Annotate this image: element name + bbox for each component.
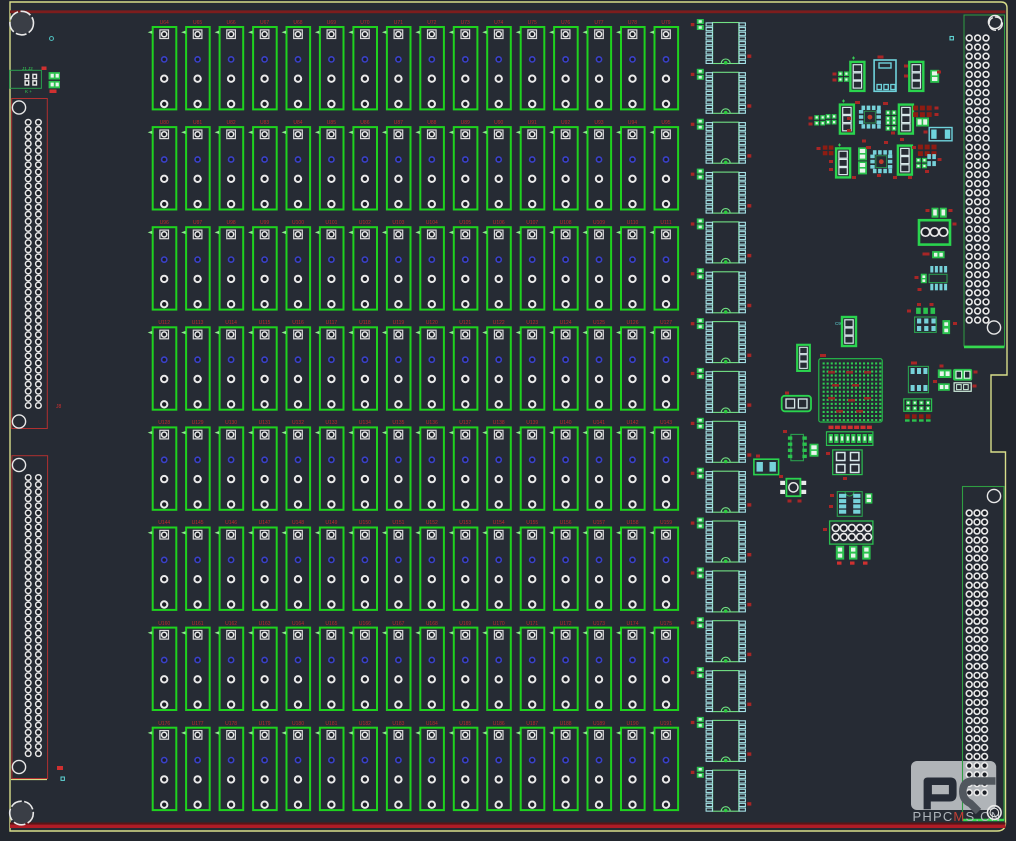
svg-text:U134: U134: [359, 420, 371, 426]
svg-text:U68: U68: [293, 20, 302, 26]
svg-text:U129: U129: [192, 420, 204, 426]
svg-text:U127: U127: [660, 320, 672, 326]
svg-text:U122: U122: [493, 320, 505, 326]
svg-text:U148: U148: [292, 520, 304, 526]
svg-text:U111: U111: [660, 220, 671, 226]
svg-text:U133: U133: [325, 420, 337, 426]
svg-text:U91: U91: [528, 120, 537, 126]
svg-text:U158: U158: [627, 520, 639, 526]
svg-text:U86: U86: [360, 120, 369, 126]
svg-text:U177: U177: [192, 721, 204, 727]
svg-text:U140: U140: [560, 420, 572, 426]
svg-text:J1 J2: J1 J2: [22, 66, 33, 71]
svg-text:U183: U183: [392, 721, 404, 727]
svg-text:U72: U72: [427, 20, 436, 26]
svg-text:U104: U104: [426, 220, 438, 226]
svg-text:U99: U99: [260, 220, 269, 226]
svg-text:U93: U93: [594, 120, 603, 126]
svg-text:U103: U103: [392, 220, 404, 226]
svg-text:U182: U182: [359, 721, 371, 727]
svg-text:U159: U159: [660, 520, 672, 526]
svg-text:U81: U81: [193, 120, 202, 126]
svg-text:U128: U128: [158, 420, 170, 426]
svg-text:U69: U69: [327, 20, 336, 26]
svg-text:U92: U92: [561, 120, 570, 126]
svg-text:U149: U149: [325, 520, 337, 526]
svg-text:U77: U77: [594, 20, 603, 26]
svg-text:U65: U65: [193, 20, 202, 26]
svg-text:U79: U79: [661, 20, 670, 26]
svg-text:U178: U178: [225, 721, 237, 727]
svg-text:U176: U176: [158, 721, 170, 727]
svg-text:U164: U164: [292, 621, 304, 627]
svg-text:U175: U175: [660, 621, 672, 627]
svg-text:U95: U95: [661, 120, 670, 126]
svg-text:U173: U173: [593, 621, 605, 627]
svg-text:U153: U153: [459, 520, 471, 526]
svg-text:U114: U114: [225, 320, 237, 326]
svg-text:U170: U170: [493, 621, 505, 627]
svg-text:U167: U167: [392, 621, 404, 627]
svg-text:U120: U120: [426, 320, 438, 326]
svg-text:U125: U125: [593, 320, 605, 326]
svg-text:U124: U124: [560, 320, 572, 326]
svg-text:U162: U162: [225, 621, 237, 627]
svg-text:U82: U82: [227, 120, 236, 126]
svg-text:C9: C9: [835, 321, 841, 326]
svg-text:U144: U144: [158, 520, 170, 526]
svg-text:K +: K +: [25, 89, 32, 94]
svg-text:U87: U87: [394, 120, 403, 126]
svg-text:U66: U66: [227, 20, 236, 26]
svg-text:U115: U115: [259, 320, 271, 326]
svg-text:U89: U89: [461, 120, 470, 126]
svg-text:U90: U90: [494, 120, 503, 126]
svg-text:U126: U126: [627, 320, 639, 326]
svg-text:U102: U102: [359, 220, 371, 226]
svg-text:U101: U101: [325, 220, 337, 226]
svg-text:U190: U190: [627, 721, 639, 727]
svg-text:U118: U118: [359, 320, 371, 326]
svg-text:U154: U154: [493, 520, 505, 526]
svg-text:U136: U136: [426, 420, 438, 426]
svg-text:U184: U184: [426, 721, 438, 727]
svg-text:U179: U179: [259, 721, 271, 727]
svg-text:U155: U155: [526, 520, 538, 526]
svg-text:U147: U147: [259, 520, 271, 526]
svg-text:U163: U163: [259, 621, 271, 627]
svg-text:U172: U172: [560, 621, 572, 627]
svg-text:U160: U160: [158, 621, 170, 627]
svg-text:U98: U98: [227, 220, 236, 226]
svg-text:U113: U113: [192, 320, 204, 326]
svg-text:U171: U171: [526, 621, 538, 627]
svg-text:U121: U121: [459, 320, 471, 326]
svg-text:U75: U75: [528, 20, 537, 26]
svg-text:U156: U156: [560, 520, 572, 526]
svg-text:U146: U146: [225, 520, 237, 526]
svg-text:U187: U187: [526, 721, 538, 727]
svg-text:U84: U84: [293, 120, 302, 126]
svg-text:U109: U109: [593, 220, 605, 226]
svg-text:U135: U135: [392, 420, 404, 426]
svg-text:J8: J8: [56, 404, 62, 410]
svg-text:U185: U185: [459, 721, 471, 727]
svg-text:U119: U119: [393, 320, 405, 326]
svg-text:U74: U74: [494, 20, 503, 26]
svg-text:U141: U141: [593, 420, 605, 426]
svg-text:U107: U107: [526, 220, 538, 226]
svg-text:U108: U108: [560, 220, 572, 226]
svg-text:U191: U191: [660, 721, 672, 727]
svg-text:U106: U106: [493, 220, 505, 226]
svg-text:U152: U152: [426, 520, 438, 526]
svg-text:U64: U64: [160, 20, 169, 26]
svg-text:U188: U188: [560, 721, 572, 727]
svg-text:U150: U150: [359, 520, 371, 526]
svg-text:U76: U76: [561, 20, 570, 26]
svg-text:U97: U97: [193, 220, 202, 226]
svg-text:U145: U145: [192, 520, 204, 526]
svg-text:U112: U112: [158, 320, 170, 326]
svg-text:U117: U117: [326, 320, 338, 326]
svg-text:U174: U174: [627, 621, 639, 627]
svg-text:U85: U85: [327, 120, 336, 126]
svg-text:U157: U157: [593, 520, 605, 526]
svg-text:U139: U139: [526, 420, 538, 426]
svg-text:U186: U186: [493, 721, 505, 727]
svg-text:U166: U166: [359, 621, 371, 627]
svg-text:U94: U94: [628, 120, 637, 126]
svg-text:U180: U180: [292, 721, 304, 727]
svg-text:U181: U181: [325, 721, 337, 727]
svg-text:U100: U100: [292, 220, 304, 226]
svg-text:U67: U67: [260, 20, 269, 26]
svg-text:U96: U96: [160, 220, 169, 226]
svg-text:U88: U88: [427, 120, 436, 126]
svg-text:U169: U169: [459, 621, 471, 627]
svg-text:U151: U151: [392, 520, 404, 526]
svg-text:U123: U123: [526, 320, 538, 326]
svg-text:U73: U73: [461, 20, 470, 26]
svg-text:U142: U142: [627, 420, 639, 426]
svg-text:U116: U116: [292, 320, 304, 326]
svg-text:U143: U143: [660, 420, 672, 426]
svg-text:U80: U80: [160, 120, 169, 126]
svg-text:U110: U110: [627, 220, 639, 226]
svg-text:U105: U105: [459, 220, 471, 226]
svg-text:U83: U83: [260, 120, 269, 126]
svg-text:U137: U137: [459, 420, 471, 426]
svg-text:U130: U130: [225, 420, 237, 426]
svg-text:U165: U165: [325, 621, 337, 627]
svg-text:U70: U70: [360, 20, 369, 26]
svg-text:U168: U168: [426, 621, 438, 627]
svg-text:U161: U161: [192, 621, 204, 627]
svg-text:U138: U138: [493, 420, 505, 426]
svg-text:U71: U71: [394, 20, 403, 26]
svg-text:U131: U131: [259, 420, 271, 426]
svg-text:U189: U189: [593, 721, 605, 727]
svg-text:U132: U132: [292, 420, 304, 426]
svg-text:U78: U78: [628, 20, 637, 26]
